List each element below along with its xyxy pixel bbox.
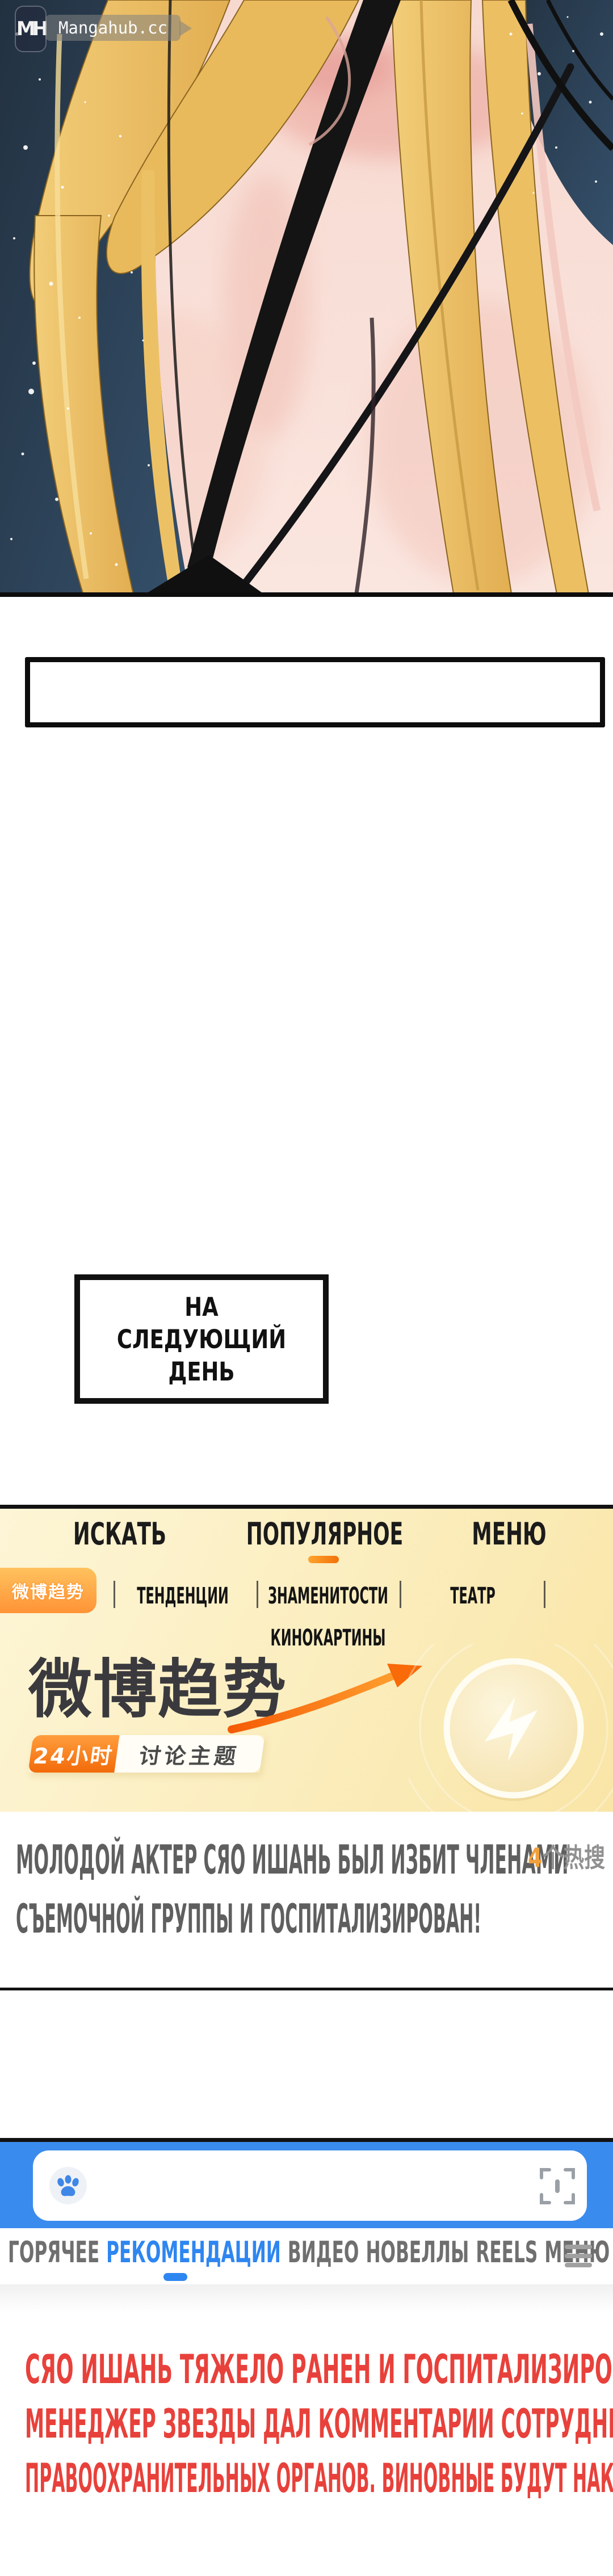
weibo-trends-logo-icon xyxy=(409,1644,613,1812)
weibo-subtab-celebrities[interactable]: ЗНАМЕНИТОСТИ xyxy=(268,1583,388,1609)
watermark-arrow-icon xyxy=(179,20,192,36)
subtab-divider xyxy=(400,1581,401,1608)
section-divider xyxy=(0,1988,613,1990)
subtab-divider xyxy=(544,1581,545,1608)
search-app-tabbar: ГОРЯЧЕЕРЕКОМЕНДАЦИИВИДЕОНОВЕЛЛЫREELSМЕНЮ xyxy=(8,2236,613,2270)
scan-icon[interactable] xyxy=(537,2167,578,2205)
panel-top-border xyxy=(0,2138,613,2142)
next-day-line2: ДЕНЬ xyxy=(102,1356,301,1388)
active-tab-indicator xyxy=(308,1556,339,1563)
tab-recommendations[interactable]: РЕКОМЕНДАЦИИ xyxy=(106,2236,281,2270)
banner-tag-topic: 讨论主题 xyxy=(114,1735,264,1773)
banner-swoosh-arrow-icon xyxy=(227,1662,431,1742)
headline-line1: МОЛОДОЙ АКТЕР СЯО ИШАНЬ БЫЛ ИЗБИТ ЧЛЕНАМ… xyxy=(16,1838,568,1882)
hot-count-number: 4 xyxy=(528,1842,543,1873)
weibo-tab-search[interactable]: ИСКАТЬ xyxy=(73,1516,166,1552)
paw-icon[interactable] xyxy=(49,2166,87,2205)
panel-top-border xyxy=(0,1505,613,1509)
tab-reels[interactable]: REELS xyxy=(476,2236,538,2270)
next-day-caption-box: НА СЛЕДУЮЩИЙ ДЕНЬ xyxy=(74,1274,329,1404)
banner-tag-pill: 24小时 讨论主题 xyxy=(28,1735,264,1773)
tab-hot[interactable]: ГОРЯЧЕЕ xyxy=(8,2236,99,2270)
comic-art-panel xyxy=(0,0,613,597)
weibo-tab-menu[interactable]: МЕНЮ xyxy=(472,1516,546,1552)
hamburger-menu-icon[interactable] xyxy=(565,2245,592,2272)
narration-line1: СЯО ИШАНЬ ТЯЖЕЛО РАНЕН И ГОСПИТАЛИЗИРОВА… xyxy=(25,2348,613,2391)
weibo-subtab-theater[interactable]: ТЕАТР xyxy=(450,1583,496,1609)
narration-line2: МЕНЕДЖЕР ЗВЕЗДЫ ДАЛ КОММЕНТАРИИ СОТРУДНИ… xyxy=(25,2402,613,2445)
hot-search-count: 4个热搜 xyxy=(528,1837,605,1875)
weibo-trends-badge: 微博趋势 xyxy=(0,1568,96,1613)
next-day-line1: НА СЛЕДУЮЩИЙ xyxy=(102,1291,301,1356)
site-watermark: Mangahub.cc xyxy=(45,15,180,41)
tabbar-shadow xyxy=(0,2284,613,2313)
banner-tag-24h: 24小时 xyxy=(28,1735,119,1773)
headline-line2: СЪЕМОЧНОЙ ГРУППЫ И ГОСПИТАЛИЗИРОВАН! xyxy=(16,1897,481,1941)
subtab-divider xyxy=(114,1581,115,1608)
weibo-subtab-movies[interactable]: КИНОКАРТИНЫ xyxy=(271,1625,386,1651)
empty-caption-box xyxy=(25,657,605,727)
tab-video[interactable]: ВИДЕО xyxy=(288,2236,359,2270)
active-tab-indicator xyxy=(163,2273,187,2281)
site-logo: MH xyxy=(15,6,47,52)
weibo-tab-popular[interactable]: ПОПУЛЯРНОЕ xyxy=(246,1516,403,1552)
hot-count-suffix: 个热搜 xyxy=(543,1842,605,1873)
tab-novels[interactable]: НОВЕЛЛЫ xyxy=(366,2236,469,2270)
search-input[interactable] xyxy=(33,2150,587,2221)
weibo-subtab-trends[interactable]: ТЕНДЕНЦИИ xyxy=(137,1583,229,1609)
subtab-divider xyxy=(257,1581,258,1608)
narration-line3: ПРАВООХРАНИТЕЛЬНЫХ ОРГАНОВ. ВИНОВНЫЕ БУД… xyxy=(25,2457,613,2500)
comic-page: MH Mangahub.cc НА СЛЕДУЮЩИЙ ДЕНЬ ИСКАТЬ … xyxy=(0,0,613,2576)
